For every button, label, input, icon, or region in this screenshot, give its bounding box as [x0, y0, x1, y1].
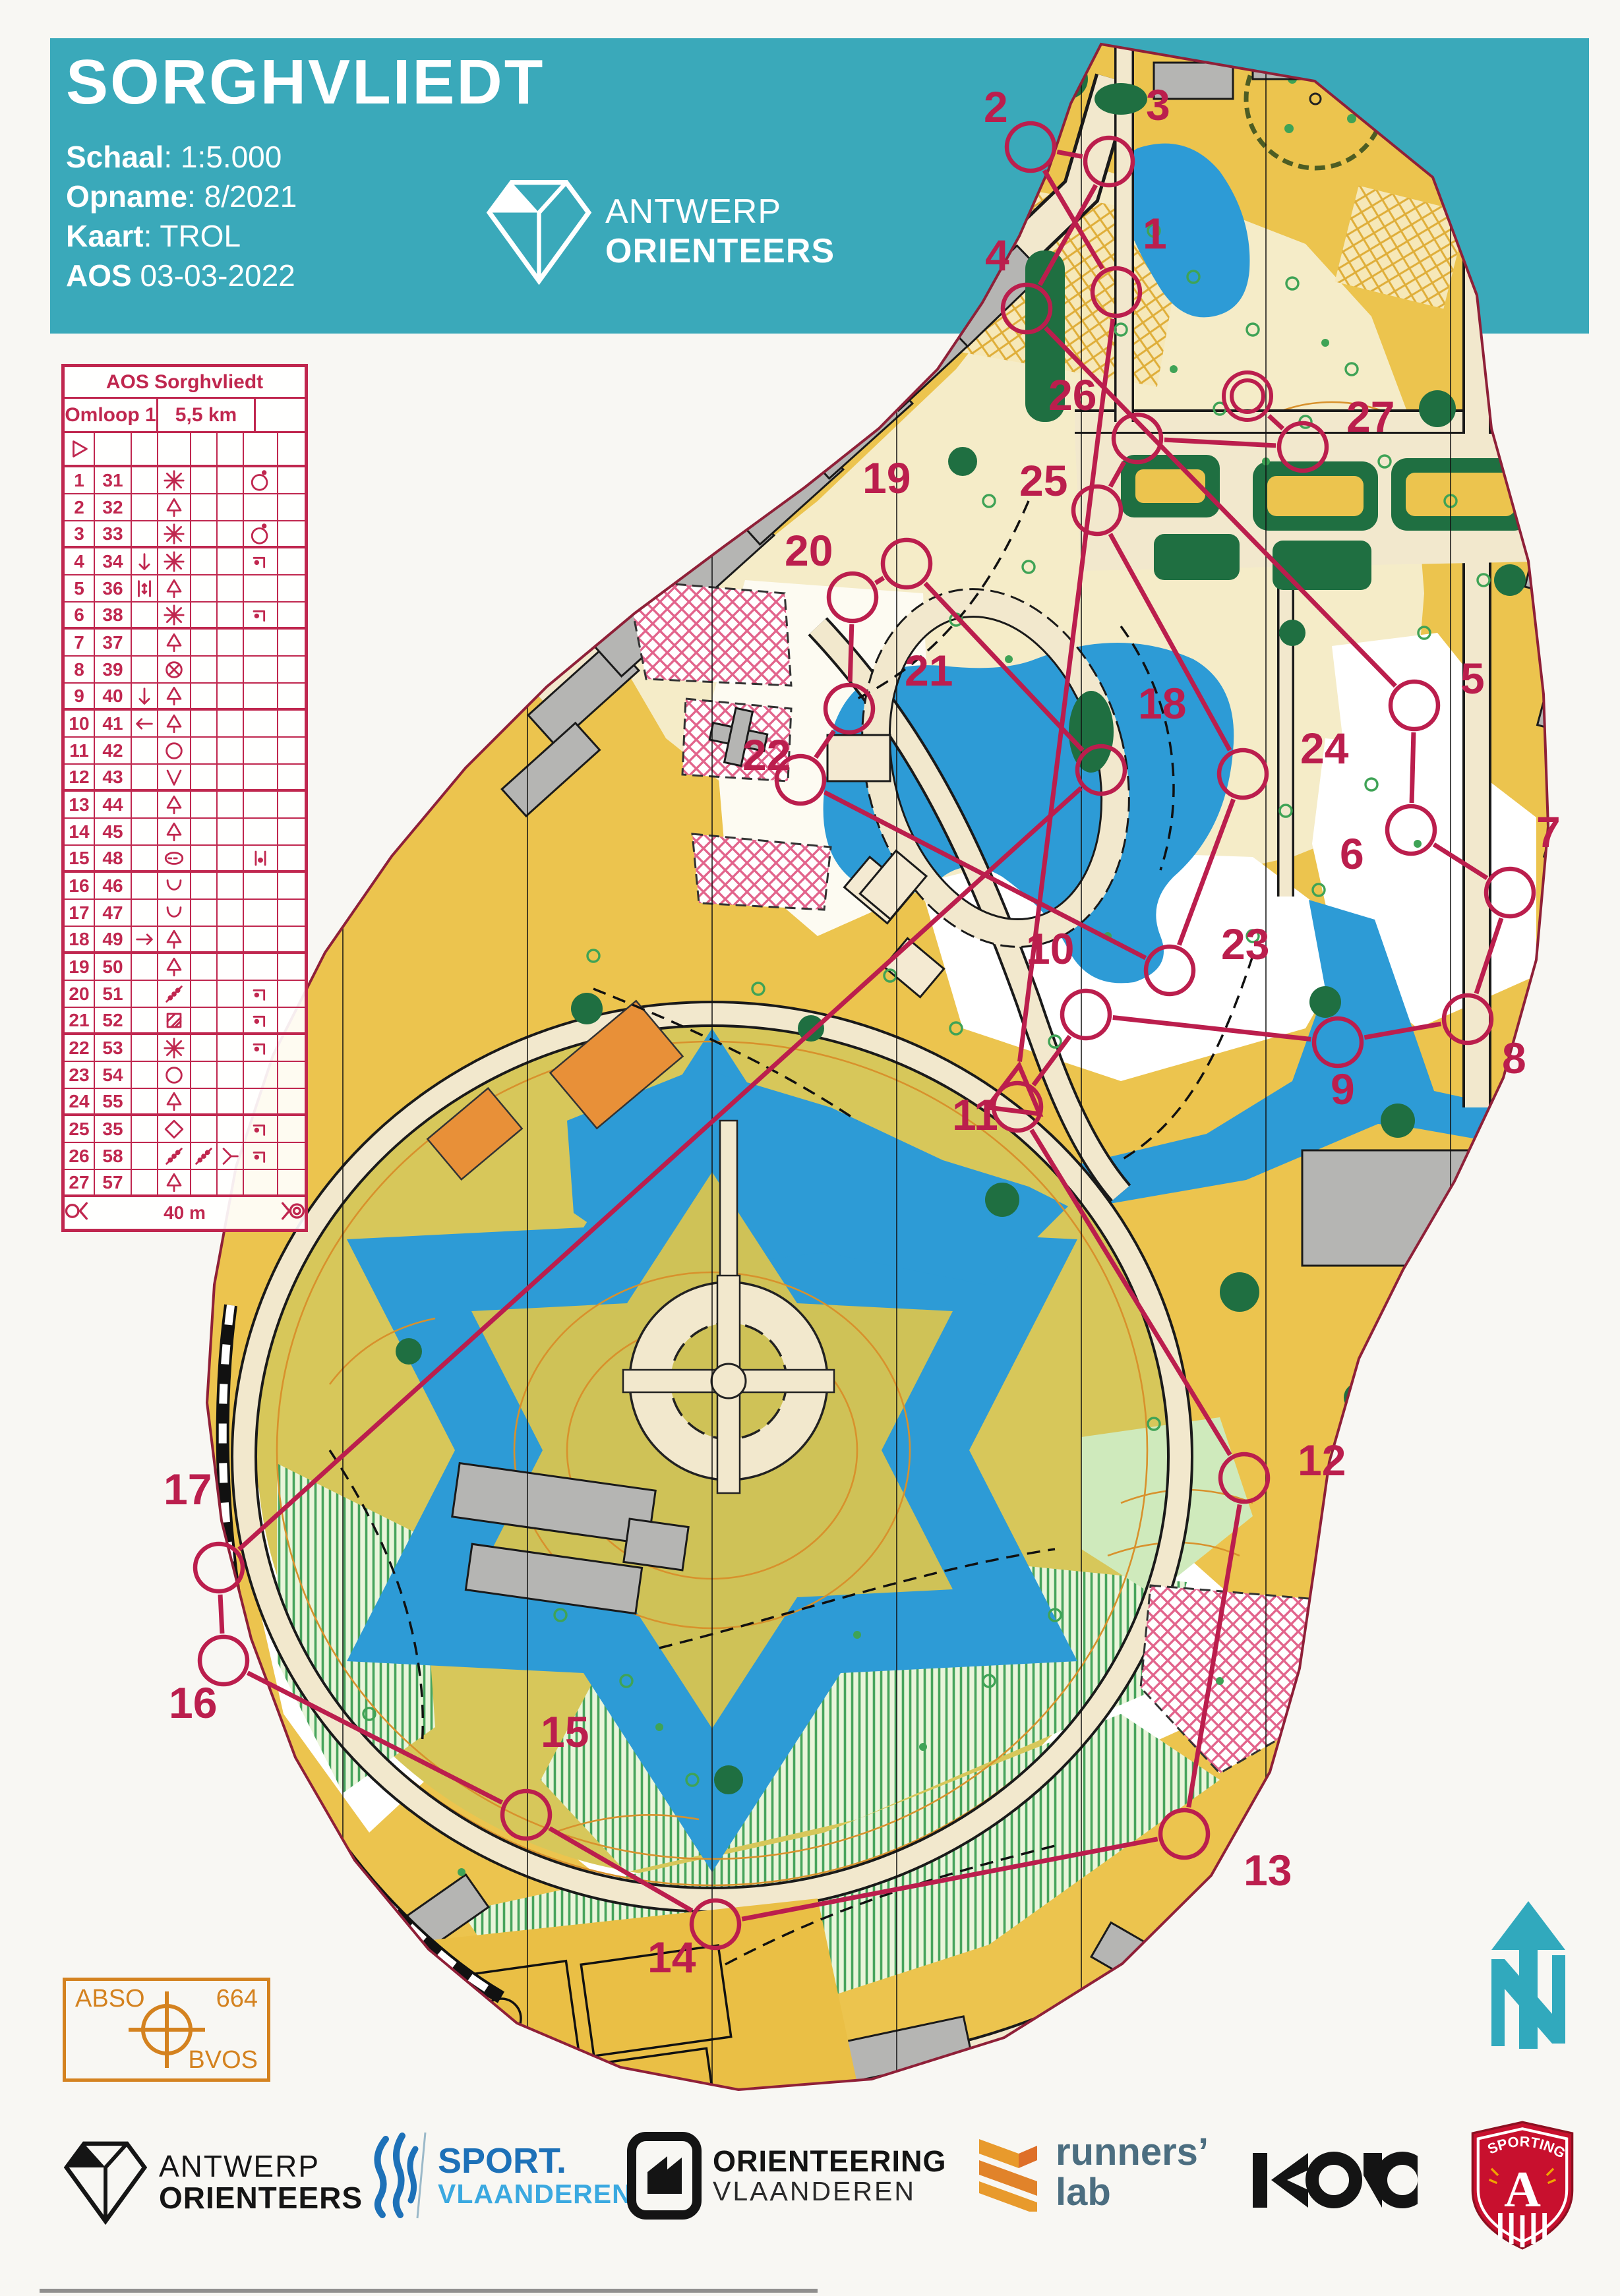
course-leg [850, 624, 852, 682]
cell-c [132, 927, 158, 951]
kono-icon [1253, 2149, 1418, 2212]
control-number-3: 3 [1146, 80, 1170, 129]
control-number-15: 15 [541, 1707, 589, 1756]
cell-code: 40 [95, 684, 132, 708]
cell-number: 8 [65, 657, 95, 682]
cell-c [132, 1089, 158, 1113]
cell-e [191, 792, 218, 817]
control-number-12: 12 [1298, 1436, 1346, 1485]
cell-h [278, 873, 305, 898]
cell-f [218, 981, 244, 1007]
cell-h [278, 819, 305, 844]
control-number-16: 16 [169, 1678, 217, 1727]
cell-c [132, 467, 158, 493]
cell-c [132, 657, 158, 682]
cell-f [218, 1089, 244, 1113]
orienteering-line1: ORIENTEERING [713, 2146, 947, 2177]
cell-e [191, 575, 218, 601]
cell-h [278, 954, 305, 980]
cell-h [278, 1089, 305, 1113]
cell-g [244, 1089, 278, 1113]
cell-h [278, 927, 305, 951]
cell-c [132, 433, 158, 465]
cell-code: 39 [95, 657, 132, 682]
cell-e [191, 711, 218, 736]
cell-e [191, 1008, 218, 1032]
scanned-orienteering-map-page: 1234567891011121314151617181920212223242… [0, 0, 1620, 2296]
control-number-9: 9 [1331, 1065, 1355, 1113]
control-description-card: AOS Sorghvliedt Omloop 1 5,5 km 13123233… [61, 364, 308, 1232]
cell-code: 47 [95, 900, 132, 926]
cell-e [191, 981, 218, 1007]
cell-number: 23 [65, 1062, 95, 1088]
control-number-18: 18 [1138, 679, 1186, 728]
cell-e [191, 548, 218, 574]
cell-h [278, 684, 305, 708]
cell-code: 52 [95, 1008, 132, 1032]
cell-e [191, 927, 218, 951]
card-grid: 1312323334345366387378399401041114212431… [65, 433, 305, 1197]
cell-d [158, 765, 191, 789]
cell-e [191, 630, 218, 655]
cell-f [218, 1116, 244, 1142]
cell-g [244, 819, 278, 844]
control-number-8: 8 [1502, 1034, 1526, 1082]
cell-c [132, 1116, 158, 1142]
cell-f [218, 521, 244, 546]
cell-f [218, 738, 244, 763]
cell-c [132, 954, 158, 980]
cell-number: 27 [65, 1170, 95, 1194]
cell-f [218, 684, 244, 708]
cell-d [158, 1143, 191, 1169]
orienteering-vl-icon [626, 2131, 702, 2220]
cell-code: 51 [95, 981, 132, 1007]
control-number-27: 27 [1346, 392, 1395, 441]
cell-h [278, 1008, 305, 1032]
cell-code: 54 [95, 1062, 132, 1088]
sponsor-footer: ANTWERP ORIENTEERS SPORT. VLAANDEREN ORI… [0, 2119, 1620, 2271]
control-number-17: 17 [164, 1465, 212, 1514]
cell-code: 53 [95, 1035, 132, 1061]
cell-g [244, 684, 278, 708]
sport-line1: SPORT. [438, 2142, 632, 2180]
meta-map: Kaart: TROL [66, 216, 545, 256]
cell-code: 57 [95, 1170, 132, 1194]
cell-h [278, 630, 305, 655]
sport-line2: VLAANDEREN [438, 2180, 632, 2208]
cell-c [132, 711, 158, 736]
cell-number: 21 [65, 1008, 95, 1032]
cell-e [191, 846, 218, 870]
cell-c [132, 630, 158, 655]
cell-e [191, 684, 218, 708]
cell-c [132, 900, 158, 926]
cell-code: 36 [95, 575, 132, 601]
cell-number: 1 [65, 467, 95, 493]
cell-e [191, 1143, 218, 1169]
runnerslab-line2: lab [1056, 2173, 1209, 2213]
cell-g [244, 630, 278, 655]
cell-h [278, 467, 305, 493]
control-number-6: 6 [1340, 829, 1364, 878]
cell-g [244, 1008, 278, 1032]
logo-kono [1253, 2149, 1418, 2212]
cell-number: 22 [65, 1035, 95, 1061]
gem-icon-black [63, 2133, 148, 2231]
map-header: SORGHVLIEDT Schaal: 1:5.000 Opname: 8/20… [66, 46, 545, 295]
chevron-stack-icon [973, 2131, 1045, 2214]
cell-f [218, 1143, 244, 1169]
logo-runners-lab: runners’ lab [973, 2131, 1209, 2214]
cell-f [218, 954, 244, 980]
cell-h [278, 738, 305, 763]
cell-code: 33 [95, 521, 132, 546]
cell-d [158, 548, 191, 574]
cell-d [158, 792, 191, 817]
cell-number: 7 [65, 630, 95, 655]
cell-f [218, 873, 244, 898]
meta-survey: Opname: 8/2021 [66, 177, 545, 216]
cell-g [244, 792, 278, 817]
control-number-23: 23 [1221, 920, 1269, 968]
cell-code: 44 [95, 792, 132, 817]
cell-g [244, 954, 278, 980]
cell-code: 55 [95, 1089, 132, 1113]
cell-d [158, 846, 191, 870]
control-number-21: 21 [905, 646, 953, 695]
cell-f [218, 467, 244, 493]
cell-number: 10 [65, 711, 95, 736]
logo-orienteering-vlaanderen: ORIENTEERING VLAANDEREN [626, 2131, 947, 2220]
cell-number: 25 [65, 1116, 95, 1142]
sporting-a-shield: SPORTING A [1467, 2119, 1578, 2251]
cell-number: 12 [65, 765, 95, 789]
control-number-22: 22 [742, 730, 791, 779]
cell-e [191, 954, 218, 980]
cell-code: 32 [95, 494, 132, 520]
map-title: SORGHVLIEDT [66, 46, 545, 119]
club-logo-header: ANTWERP ORIENTEERS [485, 170, 835, 292]
cell-c [132, 846, 158, 870]
control-number-20: 20 [785, 526, 833, 575]
cell-g [244, 521, 278, 546]
cell-f [218, 846, 244, 870]
cell-number: 13 [65, 792, 95, 817]
map-meta: Schaal: 1:5.000 Opname: 8/2021 Kaart: TR… [66, 137, 545, 295]
cell-h [278, 433, 305, 465]
cell-h [278, 1062, 305, 1088]
cell-g [244, 1035, 278, 1061]
cell-f [218, 630, 244, 655]
cell-h [278, 765, 305, 789]
cell-number: 3 [65, 521, 95, 546]
cell-number: 14 [65, 819, 95, 844]
cell-code [95, 433, 132, 465]
cell-e [191, 1035, 218, 1061]
cell-g [244, 765, 278, 789]
cell-code: 48 [95, 846, 132, 870]
cell-h [278, 711, 305, 736]
cell-d [158, 1062, 191, 1088]
cell-g [244, 1062, 278, 1088]
cell-number: 18 [65, 927, 95, 951]
control-number-13: 13 [1244, 1846, 1292, 1895]
cell-c [132, 575, 158, 601]
cell-c [132, 1035, 158, 1061]
cell-d [158, 1116, 191, 1142]
course-length: 5,5 km [158, 399, 256, 431]
cell-number: 20 [65, 981, 95, 1007]
cell-c [132, 1062, 158, 1088]
cell-d [158, 1170, 191, 1194]
lion-icon [366, 2129, 429, 2222]
cell-g [244, 494, 278, 520]
cell-h [278, 981, 305, 1007]
cell-number: 2 [65, 494, 95, 520]
cell-d [158, 1008, 191, 1032]
antwerp-line1: ANTWERP [159, 2150, 363, 2182]
card-title: AOS Sorghvliedt [65, 367, 305, 399]
control-number-5: 5 [1460, 654, 1485, 703]
cell-number: 15 [65, 846, 95, 870]
cell-e [191, 1062, 218, 1088]
cell-d [158, 657, 191, 682]
start-triangle [65, 433, 95, 465]
cell-g [244, 467, 278, 493]
cell-c [132, 603, 158, 627]
cell-g [244, 711, 278, 736]
cell-d [158, 467, 191, 493]
cell-c [132, 981, 158, 1007]
cell-h [278, 1035, 305, 1061]
cell-g [244, 657, 278, 682]
cell-c [132, 684, 158, 708]
cell-h [278, 521, 305, 546]
cell-c [132, 738, 158, 763]
cell-d [158, 433, 191, 465]
cell-code: 31 [95, 467, 132, 493]
course-name: Omloop 1 [65, 399, 158, 431]
antwerp-line2: ORIENTEERS [159, 2182, 363, 2214]
cell-f [218, 1008, 244, 1032]
cell-f [218, 1035, 244, 1061]
cell-f [218, 900, 244, 926]
cell-d [158, 494, 191, 520]
cell-e [191, 657, 218, 682]
cell-e [191, 900, 218, 926]
cell-e [191, 603, 218, 627]
cell-e [191, 873, 218, 898]
cell-f [218, 819, 244, 844]
cell-number: 26 [65, 1143, 95, 1169]
cell-number: 9 [65, 684, 95, 708]
control-flag-icon [127, 1990, 206, 2069]
cell-e [191, 1116, 218, 1142]
control-number-11: 11 [952, 1090, 998, 1139]
cell-f [218, 433, 244, 465]
cell-f [218, 1062, 244, 1088]
cell-d [158, 711, 191, 736]
cell-h [278, 792, 305, 817]
cell-number: 24 [65, 1089, 95, 1113]
cell-e [191, 494, 218, 520]
federation-stamp: ABSO 664 BVOS [63, 1978, 270, 2082]
cell-c [132, 521, 158, 546]
card-finish-row: 40 m [65, 1197, 305, 1229]
scan-edge-line [40, 2289, 818, 2293]
cell-g [244, 873, 278, 898]
cell-g [244, 603, 278, 627]
cell-f [218, 603, 244, 627]
finish-icon [278, 1198, 305, 1229]
cell-c [132, 548, 158, 574]
cell-h [278, 1143, 305, 1169]
cell-h [278, 575, 305, 601]
cell-f [218, 548, 244, 574]
control-number-7: 7 [1536, 808, 1561, 856]
control-number-1: 1 [1143, 209, 1167, 258]
cell-d [158, 819, 191, 844]
cell-code: 41 [95, 711, 132, 736]
cell-g [244, 1170, 278, 1194]
cell-code: 58 [95, 1143, 132, 1169]
cell-number: 19 [65, 954, 95, 980]
cell-number: 4 [65, 548, 95, 574]
cell-d [158, 684, 191, 708]
cell-e [191, 1089, 218, 1113]
control-number-4: 4 [985, 231, 1009, 280]
cell-f [218, 1170, 244, 1194]
cell-d [158, 981, 191, 1007]
cell-d [158, 575, 191, 601]
cell-e [191, 433, 218, 465]
cell-e [191, 765, 218, 789]
cell-c [132, 792, 158, 817]
cell-c [132, 819, 158, 844]
cell-code: 43 [95, 765, 132, 789]
course-leg [1412, 732, 1414, 803]
cell-code: 38 [95, 603, 132, 627]
orienteering-line2: VLAANDEREN [713, 2177, 947, 2206]
cell-code: 50 [95, 954, 132, 980]
cell-code: 42 [95, 738, 132, 763]
control-number-25: 25 [1019, 456, 1067, 505]
cell-code: 34 [95, 548, 132, 574]
cell-code: 37 [95, 630, 132, 655]
cell-h [278, 1170, 305, 1194]
cell-d [158, 873, 191, 898]
cell-code: 49 [95, 927, 132, 951]
cell-c [132, 494, 158, 520]
cell-d [158, 1089, 191, 1113]
card-course-row: Omloop 1 5,5 km [65, 399, 305, 433]
cell-h [278, 548, 305, 574]
cell-g [244, 738, 278, 763]
cell-h [278, 846, 305, 870]
cell-e [191, 467, 218, 493]
cell-f [218, 711, 244, 736]
cell-d [158, 900, 191, 926]
cell-e [191, 738, 218, 763]
finish-taped-icon [65, 1198, 91, 1229]
cell-d [158, 630, 191, 655]
cell-f [218, 657, 244, 682]
cell-g [244, 927, 278, 951]
cell-g [244, 900, 278, 926]
cell-d [158, 954, 191, 980]
logo-sporting-a: SPORTING A [1467, 2119, 1578, 2251]
control-number-24: 24 [1300, 724, 1349, 773]
control-number-26: 26 [1048, 370, 1096, 419]
cell-d [158, 603, 191, 627]
meta-event: AOS 03-03-2022 [66, 256, 545, 295]
cell-code: 46 [95, 873, 132, 898]
control-number-14: 14 [647, 1933, 696, 1982]
club-logo-text: ANTWERP ORIENTEERS [605, 192, 835, 271]
logo-antwerp-orienteers: ANTWERP ORIENTEERS [63, 2133, 363, 2231]
cell-c [132, 873, 158, 898]
gem-icon [485, 170, 593, 292]
cell-f [218, 927, 244, 951]
cell-g [244, 1143, 278, 1169]
cell-d [158, 738, 191, 763]
cell-g [244, 1116, 278, 1142]
course-leg [220, 1595, 222, 1634]
cell-e [191, 521, 218, 546]
cell-g [244, 433, 278, 465]
cell-e [191, 819, 218, 844]
cell-code: 35 [95, 1116, 132, 1142]
cell-f [218, 494, 244, 520]
control-number-19: 19 [862, 454, 911, 502]
cell-e [191, 1170, 218, 1194]
cell-number: 17 [65, 900, 95, 926]
cell-number: 11 [65, 738, 95, 763]
cell-c [132, 1170, 158, 1194]
cell-code: 45 [95, 819, 132, 844]
svg-text:A: A [1504, 2161, 1541, 2218]
cell-c [132, 1143, 158, 1169]
cell-c [132, 765, 158, 789]
cell-d [158, 1035, 191, 1061]
cell-h [278, 900, 305, 926]
cell-g [244, 548, 278, 574]
control-number-10: 10 [1026, 924, 1074, 973]
cell-d [158, 927, 191, 951]
cell-h [278, 657, 305, 682]
runnerslab-line1: runners’ [1056, 2133, 1209, 2173]
logo-sport-vlaanderen: SPORT. VLAANDEREN [366, 2129, 632, 2222]
cell-g [244, 846, 278, 870]
cell-f [218, 765, 244, 789]
cell-f [218, 575, 244, 601]
cell-g [244, 575, 278, 601]
cell-d [158, 521, 191, 546]
cell-g [244, 981, 278, 1007]
meta-scale: Schaal: 1:5.000 [66, 137, 545, 177]
control-number-2: 2 [984, 82, 1008, 131]
cell-number: 6 [65, 603, 95, 627]
cell-h [278, 1116, 305, 1142]
cell-c [132, 1008, 158, 1032]
cell-number: 16 [65, 873, 95, 898]
cell-h [278, 603, 305, 627]
finish-distance: 40 m [91, 1202, 278, 1223]
cell-f [218, 792, 244, 817]
cell-number: 5 [65, 575, 95, 601]
stamp-number: 664 [216, 1985, 258, 2013]
